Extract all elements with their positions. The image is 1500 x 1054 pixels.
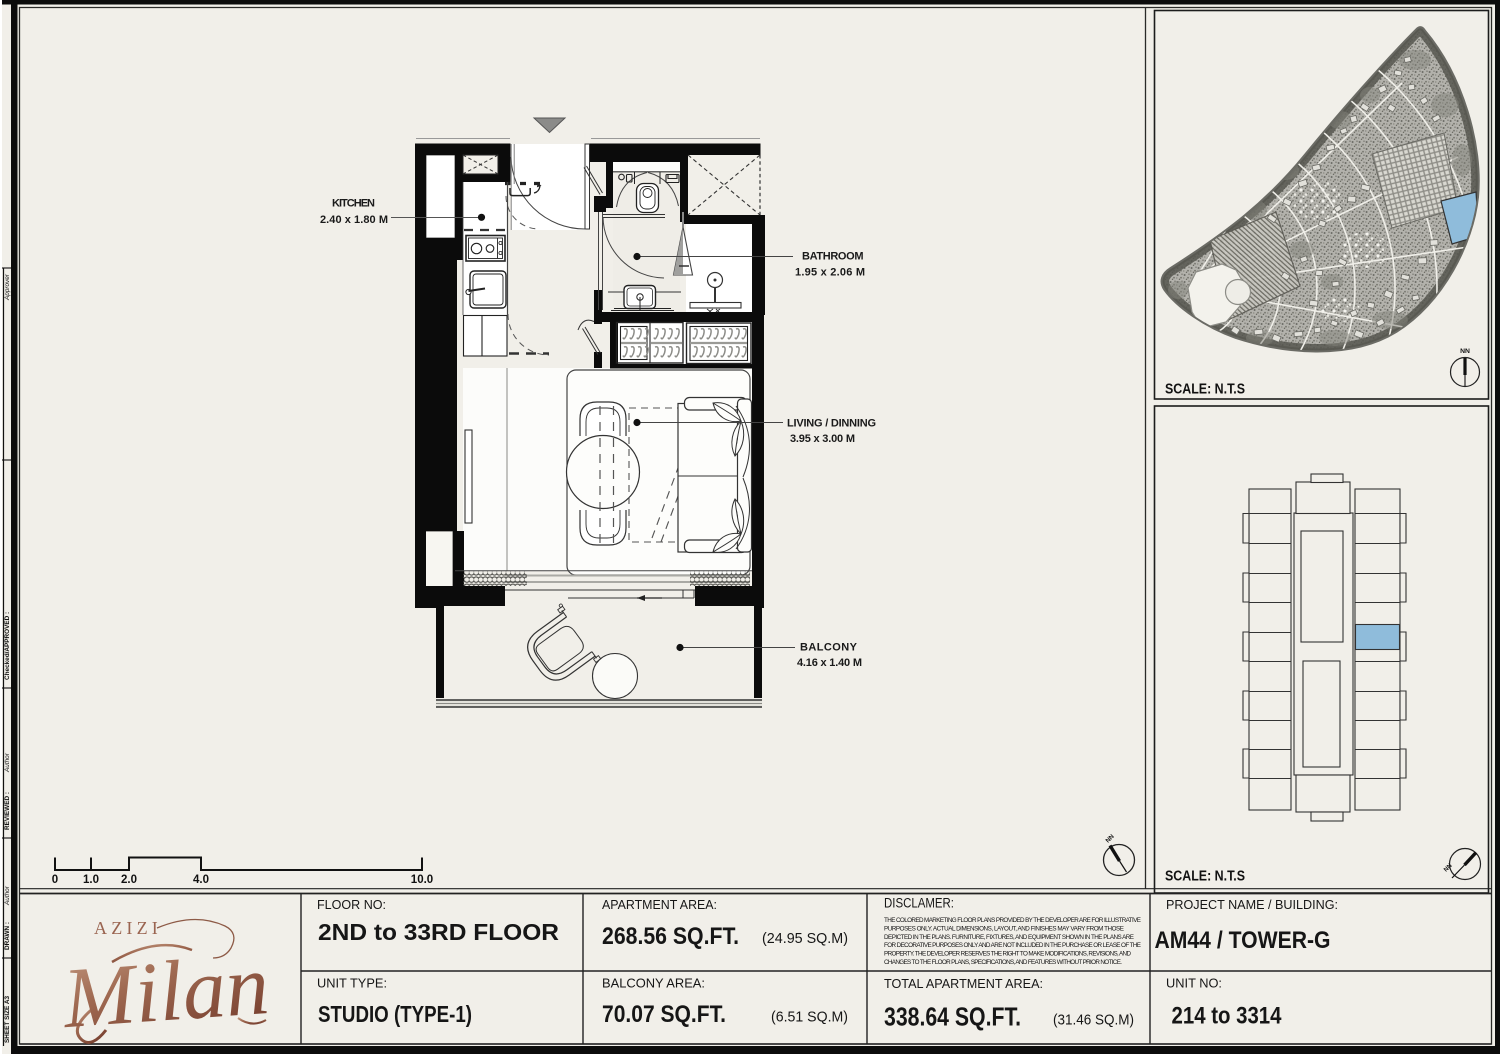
- svg-text:PURPOSES ONLY. ACTUAL DIMENSIO: PURPOSES ONLY. ACTUAL DIMENSIONS, LAYOUT…: [884, 925, 1124, 932]
- svg-text:NN: NN: [1460, 348, 1470, 355]
- svg-text:APARTMENT AREA:: APARTMENT AREA:: [602, 897, 717, 912]
- svg-text:Author: Author: [4, 752, 11, 773]
- svg-text:THE COLORED MARKETING FLOOR PL: THE COLORED MARKETING FLOOR PLANS PROVID…: [884, 917, 1141, 924]
- svg-text:BALCONY: BALCONY: [800, 642, 858, 654]
- svg-text:2.0: 2.0: [121, 874, 137, 886]
- svg-text:TOTAL APARTMENT AREA:: TOTAL APARTMENT AREA:: [884, 976, 1043, 991]
- svg-text:DISCLAMER:: DISCLAMER:: [884, 896, 954, 911]
- svg-text:PROPERTY. THE DEVELOPER RESERV: PROPERTY. THE DEVELOPER RESERVES THE RIG…: [884, 951, 1131, 958]
- svg-text:DRAWN :: DRAWN :: [4, 922, 11, 950]
- svg-text:Milan: Milan: [58, 936, 272, 1046]
- svg-text:AZIZI: AZIZI: [94, 918, 162, 938]
- svg-text:Author: Author: [4, 885, 11, 906]
- svg-text:PROJECT NAME / BUILDING:: PROJECT NAME / BUILDING:: [1166, 897, 1338, 912]
- svg-text:CHANGES TO THE FLOOR PLANS, SP: CHANGES TO THE FLOOR PLANS, SPECIFICATIO…: [884, 959, 1122, 966]
- svg-text:70.07 SQ.FT.: 70.07 SQ.FT.: [602, 1001, 726, 1028]
- svg-text:STUDIO (TYPE-1): STUDIO (TYPE-1): [318, 1001, 472, 1027]
- svg-text:FLOOR NO:: FLOOR NO:: [317, 897, 386, 912]
- svg-text:SCALE: N.T.S: SCALE: N.T.S: [1165, 869, 1245, 885]
- svg-text:LIVING / DINNING: LIVING / DINNING: [787, 418, 876, 430]
- svg-text:Approver: Approver: [4, 273, 11, 301]
- svg-text:BATHROOM: BATHROOM: [802, 251, 864, 263]
- svg-text:Checked/APPROVED :: Checked/APPROVED :: [4, 612, 11, 680]
- svg-text:AM44 / TOWER-G: AM44 / TOWER-G: [1155, 927, 1331, 954]
- svg-text:268.56 SQ.FT.: 268.56 SQ.FT.: [602, 923, 739, 950]
- svg-text:3.95 x 3.00 M: 3.95 x 3.00 M: [790, 433, 855, 445]
- svg-text:4.16 x 1.40 M: 4.16 x 1.40 M: [797, 657, 862, 669]
- svg-text:UNIT TYPE:: UNIT TYPE:: [317, 976, 387, 991]
- svg-text:KITCHEN: KITCHEN: [332, 198, 375, 210]
- svg-text:SHEET SIZE A3: SHEET SIZE A3: [4, 996, 11, 1043]
- svg-text:(6.51 SQ.M): (6.51 SQ.M): [771, 1009, 848, 1026]
- svg-text:UNIT NO:: UNIT NO:: [1166, 976, 1222, 991]
- svg-text:214 to 3314: 214 to 3314: [1172, 1003, 1282, 1030]
- svg-text:BALCONY AREA:: BALCONY AREA:: [602, 976, 705, 991]
- svg-text:1.0: 1.0: [83, 874, 99, 886]
- svg-text:(24.95 SQ.M): (24.95 SQ.M): [762, 930, 848, 947]
- svg-text:FOR DECORATIVE PURPOSES ONLY A: FOR DECORATIVE PURPOSES ONLY AND ARE NOT…: [884, 942, 1141, 949]
- svg-text:1.95 x 2.06 M: 1.95 x 2.06 M: [795, 267, 865, 279]
- svg-text:SCALE: N.T.S: SCALE: N.T.S: [1165, 382, 1245, 398]
- svg-text:338.64 SQ.FT.: 338.64 SQ.FT.: [884, 1004, 1021, 1032]
- svg-text:(31.46 SQ.M): (31.46 SQ.M): [1053, 1012, 1134, 1029]
- svg-text:DEPICTED IN THE PLANS. FURNITU: DEPICTED IN THE PLANS. FURNITURE, FIXTUR…: [884, 934, 1134, 941]
- svg-text:4.0: 4.0: [193, 874, 209, 886]
- svg-text:2ND to 33RD FLOOR: 2ND to 33RD FLOOR: [318, 919, 559, 945]
- svg-text:REVIEWED :: REVIEWED :: [4, 792, 11, 830]
- svg-text:2.40 x 1.80 M: 2.40 x 1.80 M: [320, 214, 388, 226]
- svg-text:0: 0: [52, 874, 58, 886]
- svg-text:10.0: 10.0: [411, 874, 433, 886]
